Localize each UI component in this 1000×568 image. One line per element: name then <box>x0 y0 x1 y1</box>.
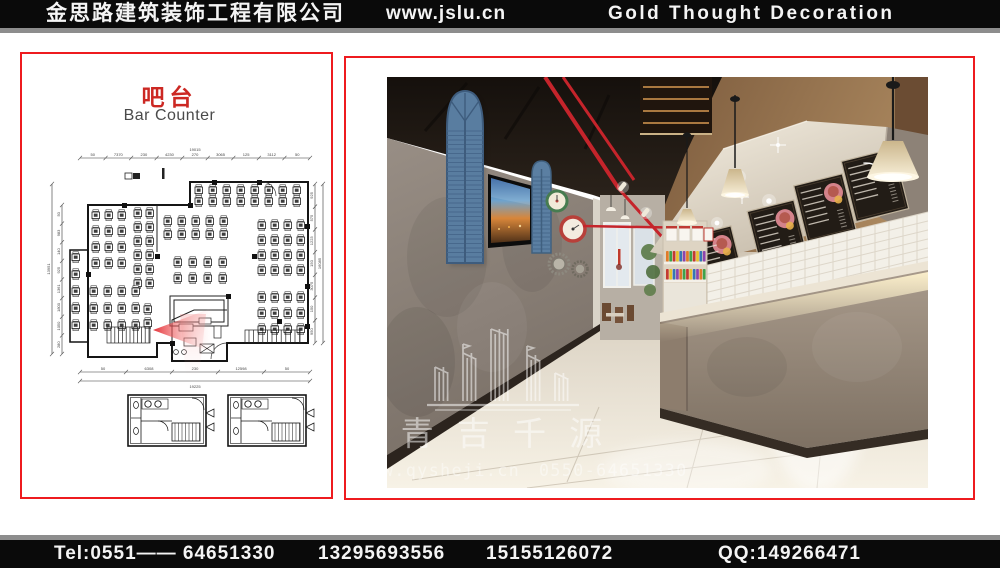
svg-text:150: 150 <box>309 259 314 266</box>
company-name-en: Gold Thought Decoration <box>608 0 895 28</box>
watermark-name: 青 吉 千 源 <box>401 415 610 452</box>
header-divider <box>0 28 1000 33</box>
footer-phone2: 15155126072 <box>486 540 613 568</box>
svg-text:19015: 19015 <box>189 147 201 152</box>
svg-text:1050: 1050 <box>56 321 61 331</box>
svg-text:230: 230 <box>141 152 148 157</box>
watermark-phone: 0550-64651330 <box>539 461 688 480</box>
rendering-photo: 青 吉 千 源 w.qysheji.cn 0550-64651330 <box>387 77 928 488</box>
footer-tel: Tel:0551—— 64651330 <box>54 540 275 568</box>
svg-text:6308: 6308 <box>145 366 155 371</box>
header-bar: 金思路建筑装饰工程有限公司 www.jslu.cn Gold Thought D… <box>0 0 1000 28</box>
svg-text:50: 50 <box>295 152 300 157</box>
footer-bar: Tel:0551—— 64651330 13295693556 15155126… <box>0 540 1000 568</box>
svg-text:125: 125 <box>243 152 250 157</box>
svg-text:16085: 16085 <box>317 257 322 269</box>
company-name-cn: 金思路建筑装饰工程有限公司 <box>46 0 345 28</box>
sign-cards <box>666 226 713 241</box>
background-seating <box>600 195 665 340</box>
svg-text:1800: 1800 <box>56 302 61 312</box>
svg-text:575: 575 <box>309 214 314 221</box>
svg-text:4230: 4230 <box>165 152 175 157</box>
footer-qq: QQ:149266471 <box>718 540 861 568</box>
rendering-scene: 青 吉 千 源 w.qysheji.cn 0550-64651330 <box>387 77 928 488</box>
shutter-window-large <box>447 91 486 266</box>
svg-text:50: 50 <box>56 211 61 216</box>
svg-text:3112: 3112 <box>267 152 276 157</box>
svg-text:150: 150 <box>309 305 314 312</box>
svg-text:280: 280 <box>56 341 61 348</box>
svg-text:1223: 1223 <box>309 236 314 246</box>
floor-plan-panel: 吧台 Bar Counter 5073702304230270306512531… <box>20 52 333 499</box>
svg-text:270: 270 <box>192 152 199 157</box>
svg-text:950: 950 <box>309 328 314 335</box>
restroom-detail <box>128 395 214 446</box>
svg-text:7370: 7370 <box>114 152 124 157</box>
svg-text:50: 50 <box>285 366 290 371</box>
restroom-detail <box>228 395 314 446</box>
svg-text:1361: 1361 <box>56 284 61 294</box>
website-text: www.jslu.cn <box>386 0 506 28</box>
svg-text:19225: 19225 <box>189 384 201 389</box>
svg-text:50: 50 <box>91 152 96 157</box>
slat-lightbox <box>640 77 712 135</box>
svg-text:140: 140 <box>56 247 61 254</box>
svg-text:925: 925 <box>56 266 61 273</box>
svg-text:13951: 13951 <box>46 263 51 275</box>
svg-text:925: 925 <box>309 191 314 198</box>
watermark-url: w.qysheji.cn <box>387 461 520 480</box>
svg-text:3075: 3075 <box>309 281 314 291</box>
tv-screen <box>488 174 533 248</box>
rendering-panel: 青 吉 千 源 w.qysheji.cn 0550-64651330 <box>344 56 975 500</box>
floor-plan-drawing: 5073702304230270306512531125019015506308… <box>22 54 331 497</box>
footer-phone1: 13295693556 <box>318 540 445 568</box>
svg-text:50: 50 <box>101 366 106 371</box>
svg-text:3065: 3065 <box>216 152 226 157</box>
svg-text:12598: 12598 <box>235 366 247 371</box>
svg-text:983: 983 <box>56 229 61 236</box>
